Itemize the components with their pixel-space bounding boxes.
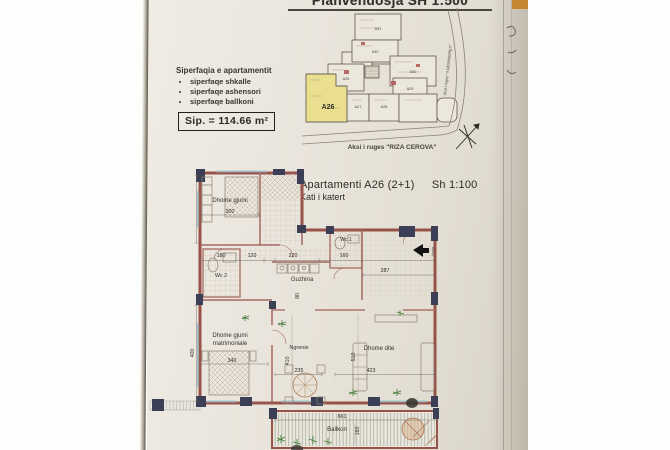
dim-wc2-w: 180 xyxy=(217,253,226,259)
room-label-dining: Ngrenie xyxy=(289,345,308,351)
dim-wc1-w: 160 xyxy=(340,253,349,259)
room-label-wc1: Wc 1 xyxy=(340,237,352,243)
room-label-balcony: Ballkon xyxy=(327,427,347,433)
sofa-right xyxy=(421,343,434,391)
dim-bedroom-w: 300 xyxy=(226,209,235,215)
photo-of-floor-plan-document: Planvendosja SH 1:500 xyxy=(0,0,670,450)
dim-balcony-w: 661 xyxy=(338,414,347,420)
info-heading: Siperfaqia e apartamentit xyxy=(176,66,298,75)
street-label-side: Aksi i ruges "4 DESHMORET" xyxy=(443,44,453,96)
unit-label: A29 xyxy=(407,87,414,91)
room-label-bedroom: Dhome gjumi xyxy=(212,198,247,204)
street-label-bottom: Aksi i ruges "RIZA CEROVA" xyxy=(322,144,462,151)
tv-bench xyxy=(375,315,417,322)
dim-master-h: 400 xyxy=(190,349,196,358)
room-label-living: Dhome dite xyxy=(364,346,395,352)
area-value-box: Sip. = 114.66 m² xyxy=(178,112,275,131)
wardrobe xyxy=(202,177,212,222)
unit-label-highlighted: A26 xyxy=(322,104,335,111)
orange-tab xyxy=(512,0,528,9)
unit-label: A30 xyxy=(410,70,417,74)
info-bullet: siperfaqe shkalle xyxy=(190,77,298,87)
dim-hall-w: 120 xyxy=(248,253,257,259)
dim-living-w: 423 xyxy=(367,368,376,374)
dim-entry-w: 287 xyxy=(381,268,390,274)
info-bullet: siperfaqe ballkoni xyxy=(190,97,298,107)
unit-label: A25 xyxy=(343,77,350,81)
room-label-wc2: Wc 2 xyxy=(215,273,227,279)
info-bullet: siperfaqe ashensori xyxy=(190,87,298,97)
room-label-master-1: Dhome gjumi xyxy=(212,333,247,339)
unit-label: A28 xyxy=(381,105,388,109)
unit-label: A31 xyxy=(375,27,382,31)
dim-dining-w: 235 xyxy=(295,368,304,374)
entry-label: Hyrja xyxy=(431,246,435,256)
kitchen-counter xyxy=(277,264,319,273)
apartment-info-box: Siperfaqia e apartamentit siperfaqe shka… xyxy=(176,66,298,131)
room-label-master-2: matrimoniale xyxy=(213,341,248,347)
handwriting-marks xyxy=(501,22,525,92)
dim-kitchen-w: 220 xyxy=(289,253,298,259)
site-plan: A31 A32 A30 A25 A29 A26 A27 A28 Aksi i r… xyxy=(298,8,478,155)
dim-kitchen-d: 90 xyxy=(295,293,301,299)
dim-living-h: 510 xyxy=(351,353,357,362)
unit-label: A27 xyxy=(355,105,362,109)
room-label-kitchen: Guzhina xyxy=(291,277,314,283)
dim-master-w: 340 xyxy=(228,358,237,364)
dim-dining-h: 410 xyxy=(285,357,291,366)
apartment-floor-plan: Hyrja Dhome gjumi Wc 2 Wc 1 Guzhina Dhom… xyxy=(185,165,445,450)
info-bullet-list: siperfaqe shkalle siperfaqe ashensori si… xyxy=(180,77,298,107)
dim-balcony-h: 160 xyxy=(355,427,361,436)
unit-label: A32 xyxy=(372,50,379,54)
